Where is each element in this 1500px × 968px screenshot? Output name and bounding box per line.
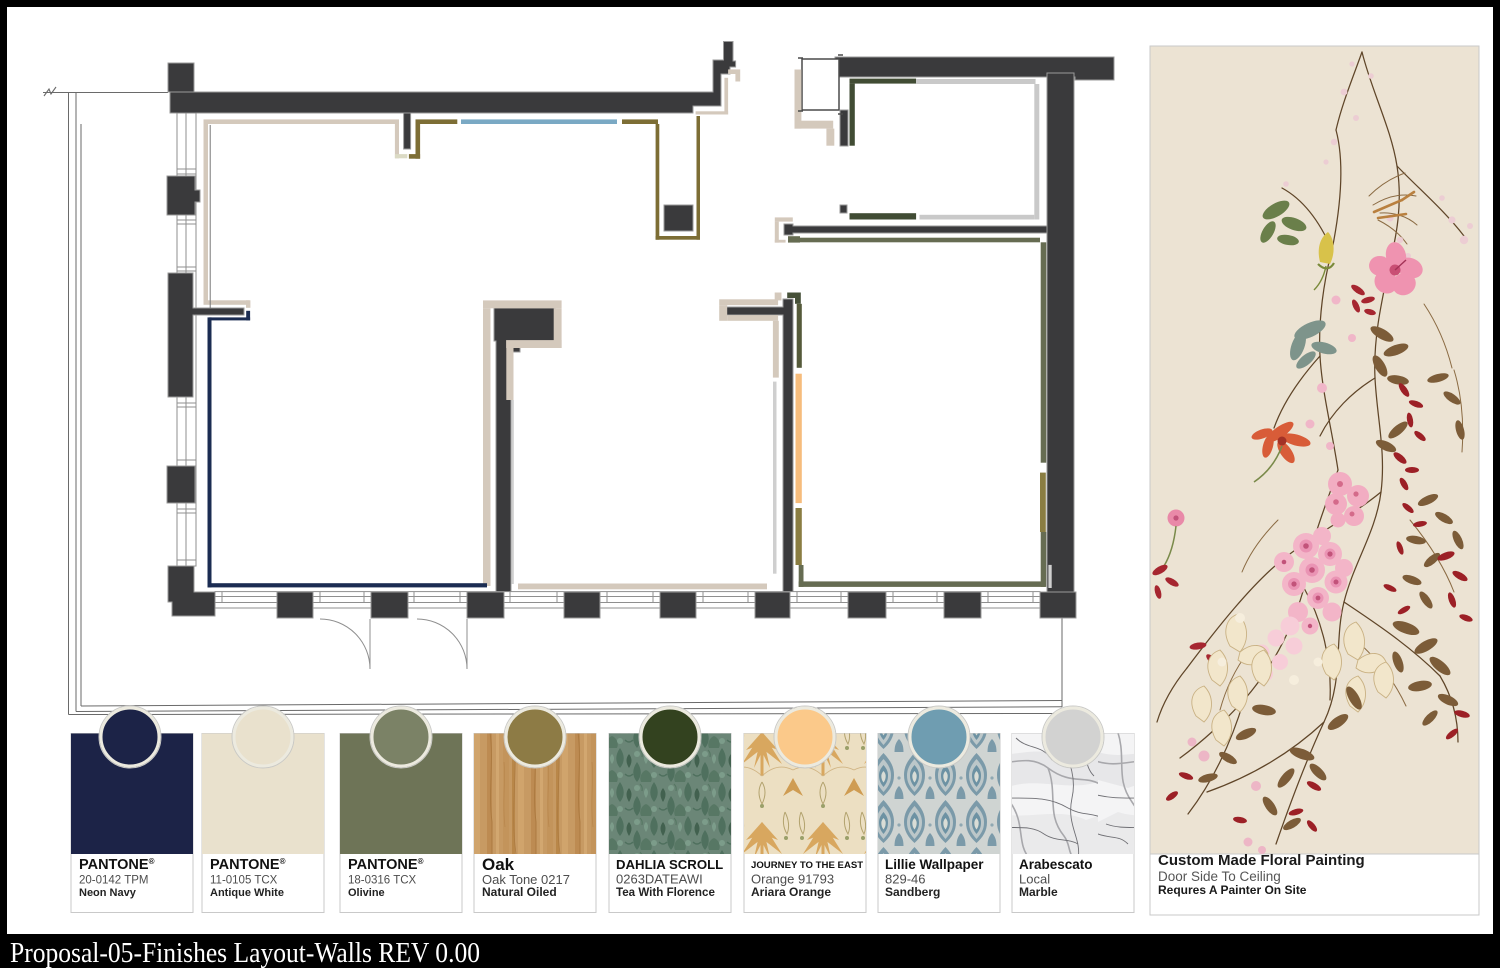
svg-text:Lillie Wallpaper: Lillie Wallpaper <box>885 857 984 872</box>
svg-text:DAHLIA SCROLL: DAHLIA SCROLL <box>616 857 723 872</box>
svg-text:PANTONE®: PANTONE® <box>348 857 424 873</box>
svg-text:11-0105 TCX: 11-0105 TCX <box>210 875 278 887</box>
svg-text:Sandberg: Sandberg <box>885 885 940 899</box>
svg-text:Door Side To Ceiling: Door Side To Ceiling <box>1158 869 1281 884</box>
svg-text:Custom Made Floral Painting: Custom Made Floral Painting <box>1158 852 1365 869</box>
svg-text:Olivine: Olivine <box>348 887 385 899</box>
svg-text:Tea With Florence: Tea With Florence <box>616 886 715 899</box>
svg-text:0263DATEAWI: 0263DATEAWI <box>616 872 703 887</box>
svg-text:Requres A Painter On Site: Requres A Painter On Site <box>1158 883 1307 897</box>
svg-text:Antique White: Antique White <box>210 887 284 899</box>
svg-text:Natural Oiled: Natural Oiled <box>482 885 557 899</box>
svg-text:Arabescato: Arabescato <box>1019 857 1093 872</box>
svg-text:JOURNEY TO THE EAST: JOURNEY TO THE EAST <box>751 860 863 871</box>
svg-text:Neon Navy: Neon Navy <box>79 887 137 899</box>
svg-text:Ariara Orange: Ariara Orange <box>751 885 831 899</box>
svg-text:PANTONE®: PANTONE® <box>79 857 155 873</box>
svg-text:Proposal-05-Finishes Layout-Wa: Proposal-05-Finishes Layout-Walls REV 0.… <box>10 938 480 968</box>
svg-text:20-0142 TPM: 20-0142 TPM <box>79 875 148 887</box>
svg-text:Marble: Marble <box>1019 885 1058 899</box>
svg-text:18-0316 TCX: 18-0316 TCX <box>348 875 417 887</box>
svg-text:PANTONE®: PANTONE® <box>210 857 286 873</box>
